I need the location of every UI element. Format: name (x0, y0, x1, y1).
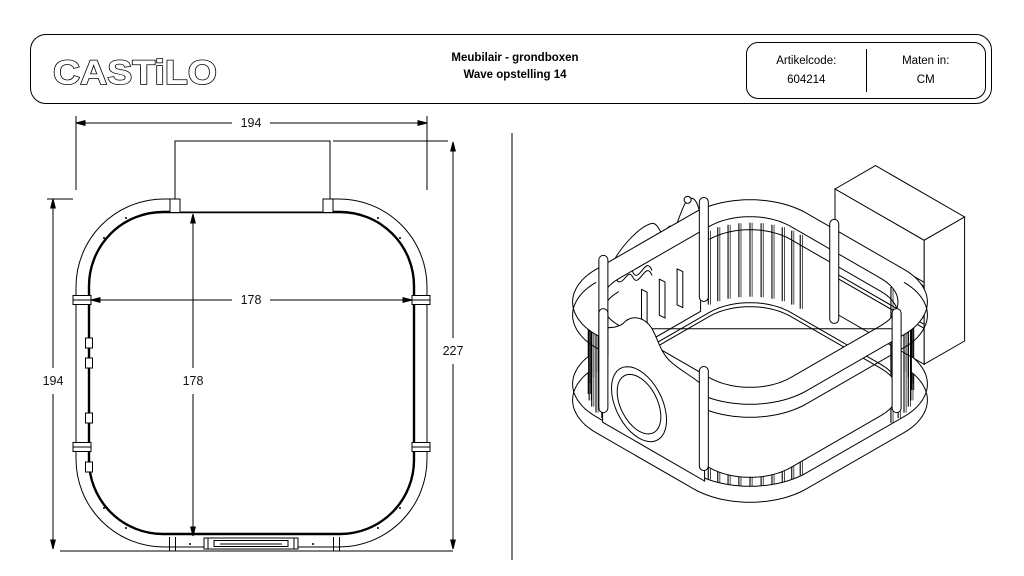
plan-gate (204, 538, 298, 549)
cabinet-right-face (924, 217, 965, 364)
post (830, 219, 839, 323)
plan-screw-dots (103, 217, 401, 545)
plan-cabinet-post-left (170, 199, 180, 213)
post (699, 367, 708, 471)
plan-connectors (73, 296, 430, 552)
plan-inner-wall (89, 212, 414, 534)
drawing-canvas: 194 194 227 178 178 (0, 0, 1024, 576)
wave-panel-knob (684, 196, 691, 203)
plan-cabinet-post-right (323, 199, 333, 213)
plan-cabinet (175, 141, 330, 212)
drawing-sheet: { "header": { "logo_text": "CASTiLO", "t… (0, 0, 1024, 576)
plan-outer-wall (76, 199, 427, 547)
dim-label-top-194: 194 (241, 116, 262, 130)
isometric-view (573, 166, 965, 503)
post (599, 309, 608, 413)
dim-label-right-227: 227 (443, 344, 464, 358)
dim-label-inner-178w: 178 (241, 293, 262, 307)
wave-zigzag-slot (659, 279, 665, 318)
plan-view: 194 194 227 178 178 (43, 116, 512, 560)
post (699, 197, 708, 301)
wave-zigzag-slot (677, 269, 683, 308)
dim-label-inner-178h: 178 (183, 374, 204, 388)
dim-label-left-194: 194 (43, 374, 64, 388)
post (892, 309, 901, 413)
